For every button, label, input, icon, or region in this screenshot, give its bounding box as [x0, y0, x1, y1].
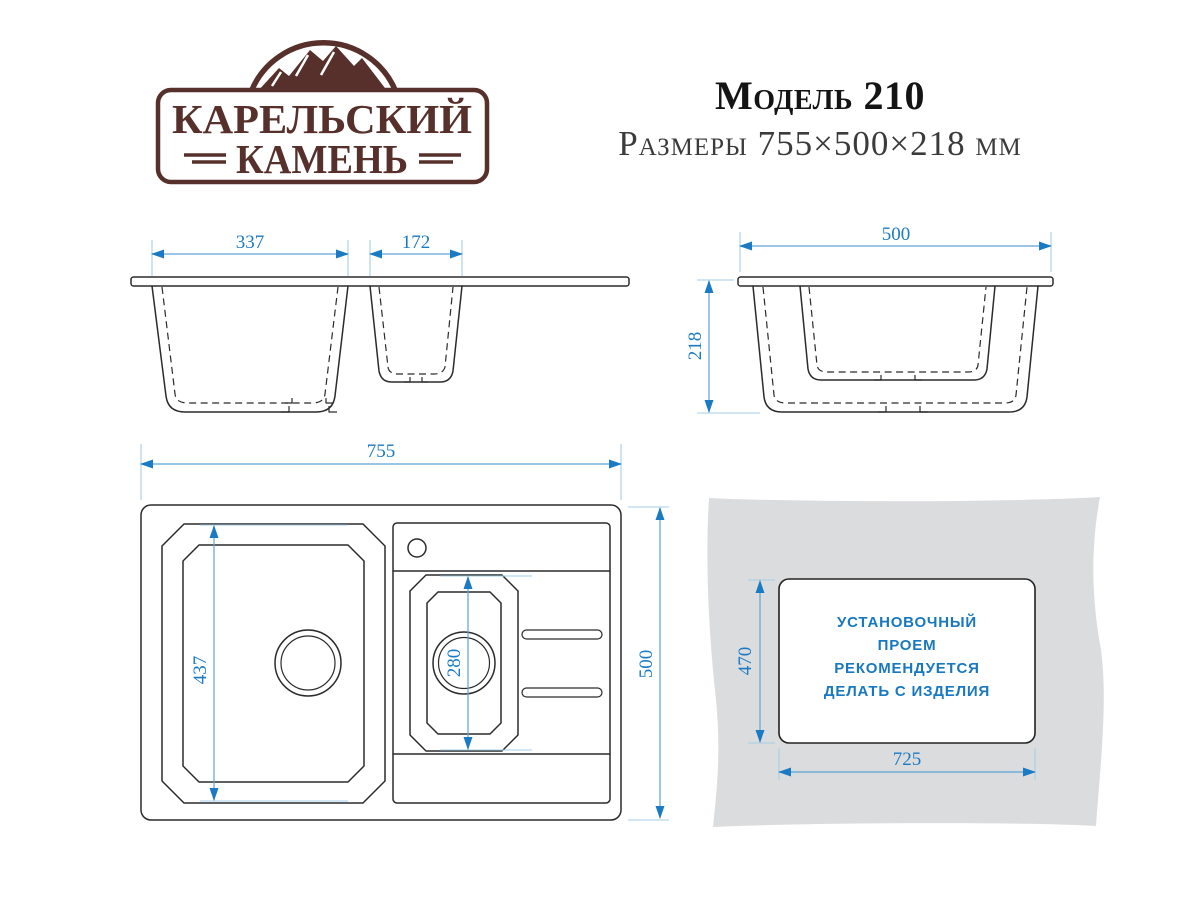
dim-cutout-width-label: 725 — [893, 749, 922, 770]
dim-overall-width-label: 755 — [367, 441, 396, 462]
dim-width-label: 500 — [882, 224, 911, 245]
dim-bowl-width-label: 337 — [236, 232, 265, 253]
technical-drawings: 337 172 500 218 — [0, 0, 1200, 918]
datasheet-page: КАРЕЛЬСКИЙ КАМЕНЬ Модель 210 Размеры 755… — [0, 0, 1200, 918]
dim-overall-depth-label: 500 — [636, 650, 657, 679]
dim-cutout-height-label: 470 — [735, 647, 756, 676]
side-section-view: 500 218 — [685, 224, 1053, 413]
side-view-dimensions: 500 218 — [685, 224, 1051, 413]
top-plan-view: 755 500 437 280 — [141, 441, 669, 820]
svg-text:ПРОЕМ: ПРОЕМ — [878, 637, 937, 654]
front-view-dimensions: 337 172 — [152, 232, 462, 276]
svg-text:УСТАНОВОЧНЫЙ: УСТАНОВОЧНЫЙ — [837, 613, 977, 631]
svg-text:РЕКОМЕНДУЕТСЯ: РЕКОМЕНДУЕТСЯ — [834, 660, 980, 677]
dim-height-label: 218 — [685, 332, 706, 361]
front-section-view: 337 172 — [131, 232, 629, 412]
dim-small-bowl-width-label: 172 — [402, 232, 431, 253]
dim-bowl-length-label: 437 — [190, 656, 211, 685]
svg-text:ДЕЛАТЬ С ИЗДЕЛИЯ: ДЕЛАТЬ С ИЗДЕЛИЯ — [824, 683, 990, 700]
installation-cutout-view: УСТАНОВОЧНЫЙ ПРОЕМ РЕКОМЕНДУЕТСЯ ДЕЛАТЬ … — [707, 497, 1103, 827]
dim-small-bowl-length-label: 280 — [444, 649, 465, 678]
